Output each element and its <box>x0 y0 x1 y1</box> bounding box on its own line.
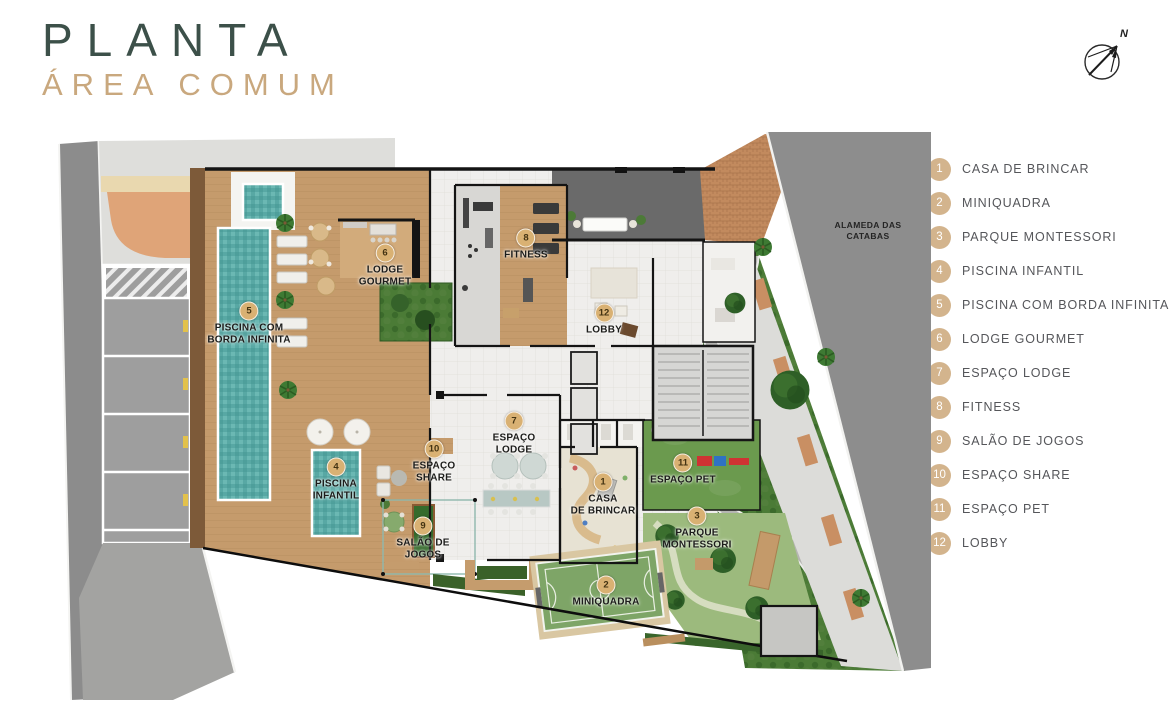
floor-plan: ALAMEDA DAS CATABAS 5 PISCINA COM BORDA … <box>55 128 935 700</box>
legend-item: 11ESPAÇO PET <box>928 492 1164 526</box>
legend-item-label: ESPAÇO SHARE <box>962 468 1071 482</box>
planter-shape <box>380 283 452 341</box>
legend-item: 8FITNESS <box>928 390 1164 424</box>
page: { "header": {"title": "PLANTA", "subtitl… <box>0 0 1170 708</box>
legend-item-label: PISCINA COM BORDA INFINITA <box>962 298 1169 312</box>
legend-item: 4PISCINA INFANTIL <box>928 254 1164 288</box>
legend-item-label: FITNESS <box>962 400 1021 414</box>
legend-item: 9SALÃO DE JOGOS <box>928 424 1164 458</box>
legend-item: 3PARQUE MONTESSORI <box>928 220 1164 254</box>
north-compass: N <box>1076 30 1140 90</box>
street-name-label: ALAMEDA DAS CATABAS <box>835 220 902 242</box>
legend: 1CASA DE BRINCAR 2MINIQUADRA 3PARQUE MON… <box>928 152 1164 560</box>
legend-item-label: MINIQUADRA <box>962 196 1051 210</box>
legend-item: 6LODGE GOURMET <box>928 322 1164 356</box>
legend-item-label: LOBBY <box>962 536 1008 550</box>
utility-room-shape <box>761 606 817 656</box>
site-plan-illustration <box>55 128 935 700</box>
legend-item-label: ESPAÇO PET <box>962 502 1050 516</box>
legend-item-label: PARQUE MONTESSORI <box>962 230 1117 244</box>
north-label: N <box>1120 28 1128 40</box>
legend-item-label: LODGE GOURMET <box>962 332 1085 346</box>
roof-shape <box>552 167 715 240</box>
compass-icon <box>1076 30 1140 90</box>
legend-item: 10ESPAÇO SHARE <box>928 458 1164 492</box>
legend-item: 2MINIQUADRA <box>928 186 1164 220</box>
page-header: PLANTA ÁREA COMUM <box>42 16 344 103</box>
legend-item-label: SALÃO DE JOGOS <box>962 434 1084 448</box>
legend-item-label: ESPAÇO LODGE <box>962 366 1071 380</box>
legend-item-label: PISCINA INFANTIL <box>962 264 1084 278</box>
fitness-room-shape <box>455 185 567 346</box>
legend-item-label: CASA DE BRINCAR <box>962 162 1089 176</box>
legend-item: 12LOBBY <box>928 526 1164 560</box>
sports-court-shape <box>529 540 670 639</box>
driveway-shape <box>79 543 235 700</box>
page-title: PLANTA <box>42 16 344 64</box>
legend-item: 5PISCINA COM BORDA INFINITA <box>928 288 1164 322</box>
legend-item: 7ESPAÇO LODGE <box>928 356 1164 390</box>
legend-item: 1CASA DE BRINCAR <box>928 152 1164 186</box>
page-subtitle: ÁREA COMUM <box>42 67 344 103</box>
lodge-gourmet-shape <box>340 220 415 278</box>
parking-shape <box>103 265 190 543</box>
